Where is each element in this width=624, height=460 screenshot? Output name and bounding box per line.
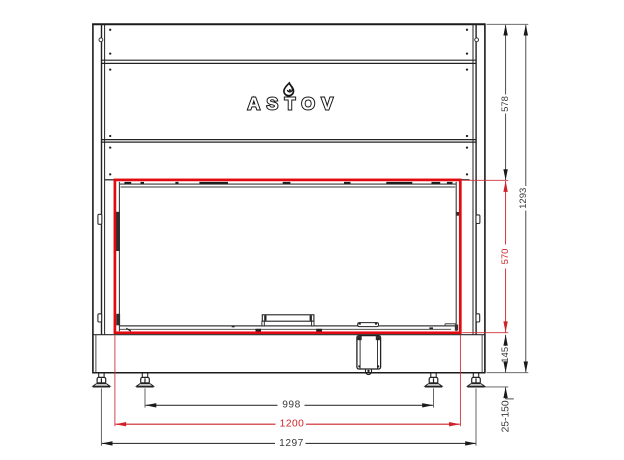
svg-text:25-150: 25-150 bbox=[500, 400, 511, 432]
svg-text:1200: 1200 bbox=[280, 419, 305, 430]
svg-text:1297: 1297 bbox=[279, 438, 304, 449]
svg-text:1293: 1293 bbox=[518, 188, 529, 209]
svg-text:145: 145 bbox=[500, 347, 511, 363]
svg-text:578: 578 bbox=[500, 96, 511, 112]
svg-text:998: 998 bbox=[282, 399, 301, 410]
svg-text:ASTOV: ASTOV bbox=[248, 94, 340, 114]
svg-text:570: 570 bbox=[500, 249, 511, 265]
